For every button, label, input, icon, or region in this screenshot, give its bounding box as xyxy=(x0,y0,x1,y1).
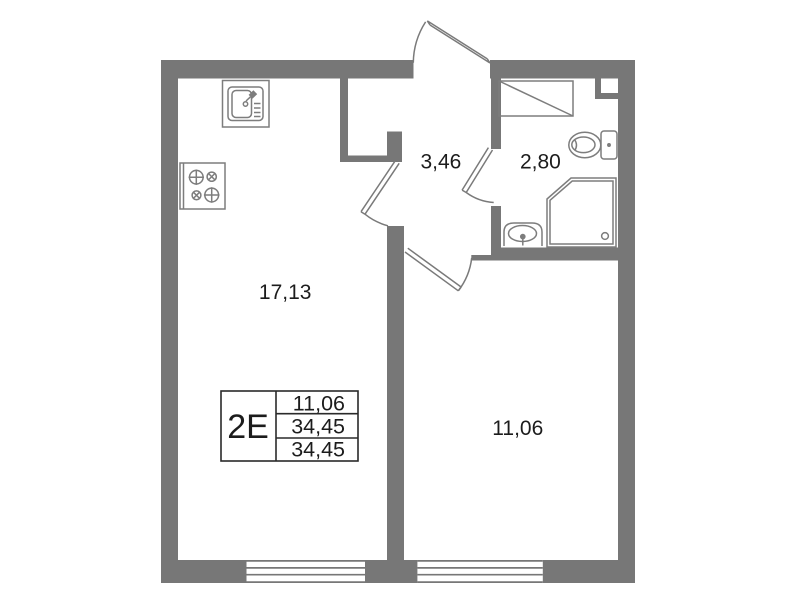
svg-text:34,45: 34,45 xyxy=(291,438,345,462)
svg-text:17,13: 17,13 xyxy=(259,281,312,304)
svg-text:3,46: 3,46 xyxy=(420,151,461,174)
svg-text:11,06: 11,06 xyxy=(293,392,345,416)
svg-text:34,45: 34,45 xyxy=(291,415,345,439)
svg-text:2E: 2E xyxy=(227,408,269,446)
svg-text:11,06: 11,06 xyxy=(492,417,543,440)
svg-text:2,80: 2,80 xyxy=(520,151,561,174)
